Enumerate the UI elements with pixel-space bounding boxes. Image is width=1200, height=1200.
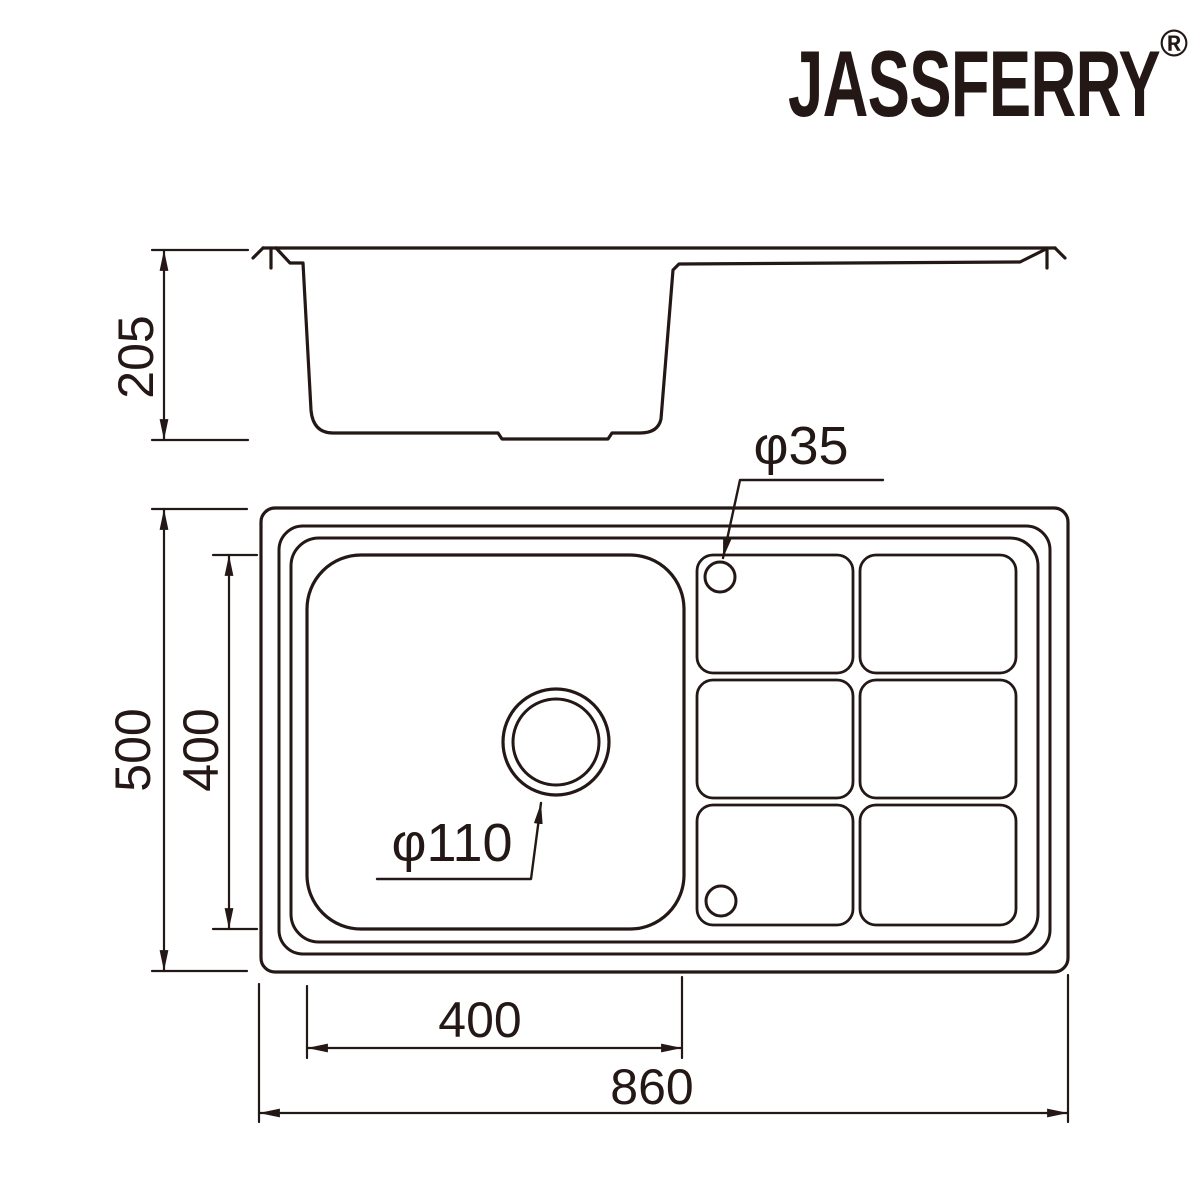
drainer-pad <box>860 680 1016 798</box>
tap-hole-bottom <box>706 886 736 916</box>
sink-outer-edge <box>261 508 1068 972</box>
drainer-pad <box>697 680 853 798</box>
side-view-bowl-profile <box>276 248 1044 439</box>
label-overall-width-860: 860 <box>610 1059 693 1115</box>
brand-logo: JASSFERRY ® <box>788 23 1188 136</box>
top-view <box>261 480 1068 972</box>
drainer-pad <box>697 805 853 925</box>
drainer-pads <box>697 555 1016 925</box>
label-depth-205: 205 <box>108 315 164 398</box>
drain-hole-outer <box>503 689 609 795</box>
label-drain-diameter: φ110 <box>391 813 512 873</box>
label-height-500: 500 <box>105 708 161 791</box>
sink-rim-inner-line <box>291 538 1038 942</box>
side-view-right-clip <box>1047 248 1065 268</box>
brand-logo-text: JASSFERRY <box>788 31 1160 136</box>
drain-hole-inner <box>513 699 599 785</box>
drainer-pad <box>860 555 1016 673</box>
side-view <box>253 248 1065 439</box>
sink-technical-drawing: JASSFERRY ® 205 500 400 φ35 φ110 400 860 <box>0 0 1200 1200</box>
dimension-depth-205 <box>152 250 248 440</box>
tap-hole-top <box>705 562 735 592</box>
label-tap-hole-diameter: φ35 <box>753 416 848 476</box>
registered-trademark-icon: ® <box>1160 23 1188 65</box>
drainer-pad <box>697 555 853 673</box>
side-view-left-clip <box>253 248 271 268</box>
tap-hole-leader-line <box>723 480 883 558</box>
label-bowl-width-400: 400 <box>438 992 521 1048</box>
label-bowl-height-400: 400 <box>173 708 229 791</box>
drainer-pad <box>860 805 1016 925</box>
sink-rim-line <box>279 526 1050 954</box>
